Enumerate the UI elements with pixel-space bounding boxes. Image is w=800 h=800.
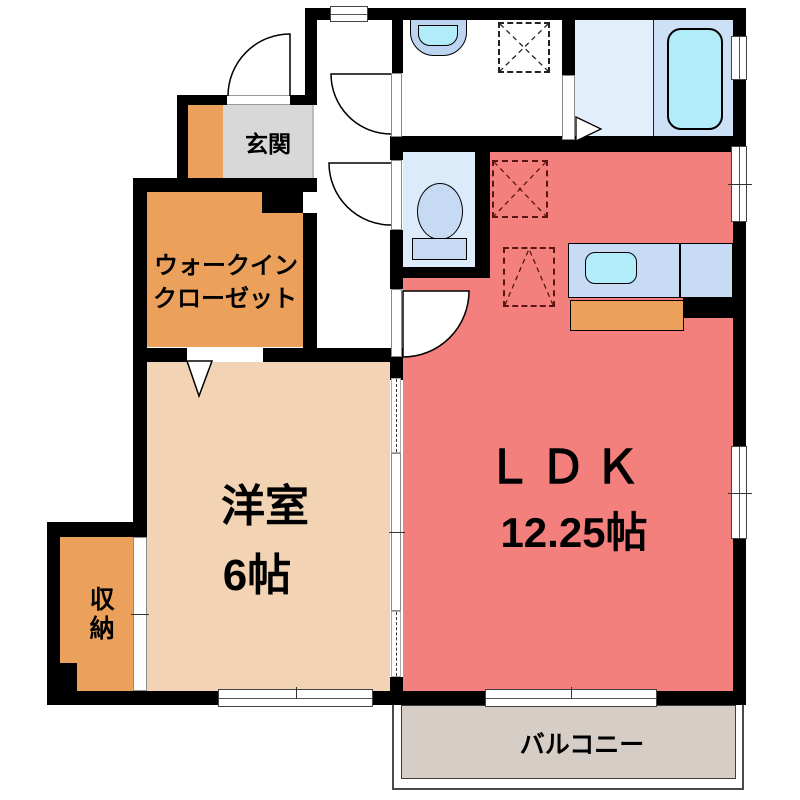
refrigerator-x-icon bbox=[494, 162, 546, 216]
toilet-door-arc bbox=[329, 163, 391, 225]
western-room-label: 洋室 bbox=[221, 484, 309, 530]
wic-door-wedge bbox=[187, 361, 212, 396]
western-room-size: 6帖 bbox=[223, 553, 291, 599]
floor-plan: 玄関 ウォークイン クローゼット 洋室 6帖 収納 ＬＤＫ 12.25帖 バルコ… bbox=[0, 0, 800, 800]
wic-label-line2: クローゼット bbox=[153, 286, 297, 311]
appliance-tent-icon bbox=[505, 249, 553, 305]
ldk-door-swing bbox=[403, 291, 469, 357]
door-symbols-layer bbox=[0, 0, 800, 800]
genkan-label: 玄関 bbox=[245, 132, 291, 156]
bathroom-door-wedge bbox=[576, 117, 601, 141]
washroom-door-arc bbox=[331, 74, 391, 134]
wic-label-line1: ウォークイン bbox=[154, 253, 298, 278]
ldk-size: 12.25帖 bbox=[500, 511, 647, 555]
ldk-label: ＬＤＫ bbox=[486, 443, 648, 491]
balcony-label: バルコニー bbox=[520, 732, 645, 758]
entrance-door-arc bbox=[228, 34, 290, 96]
washing-machine-x-icon bbox=[500, 24, 548, 71]
storage-label: 収納 bbox=[87, 586, 113, 644]
